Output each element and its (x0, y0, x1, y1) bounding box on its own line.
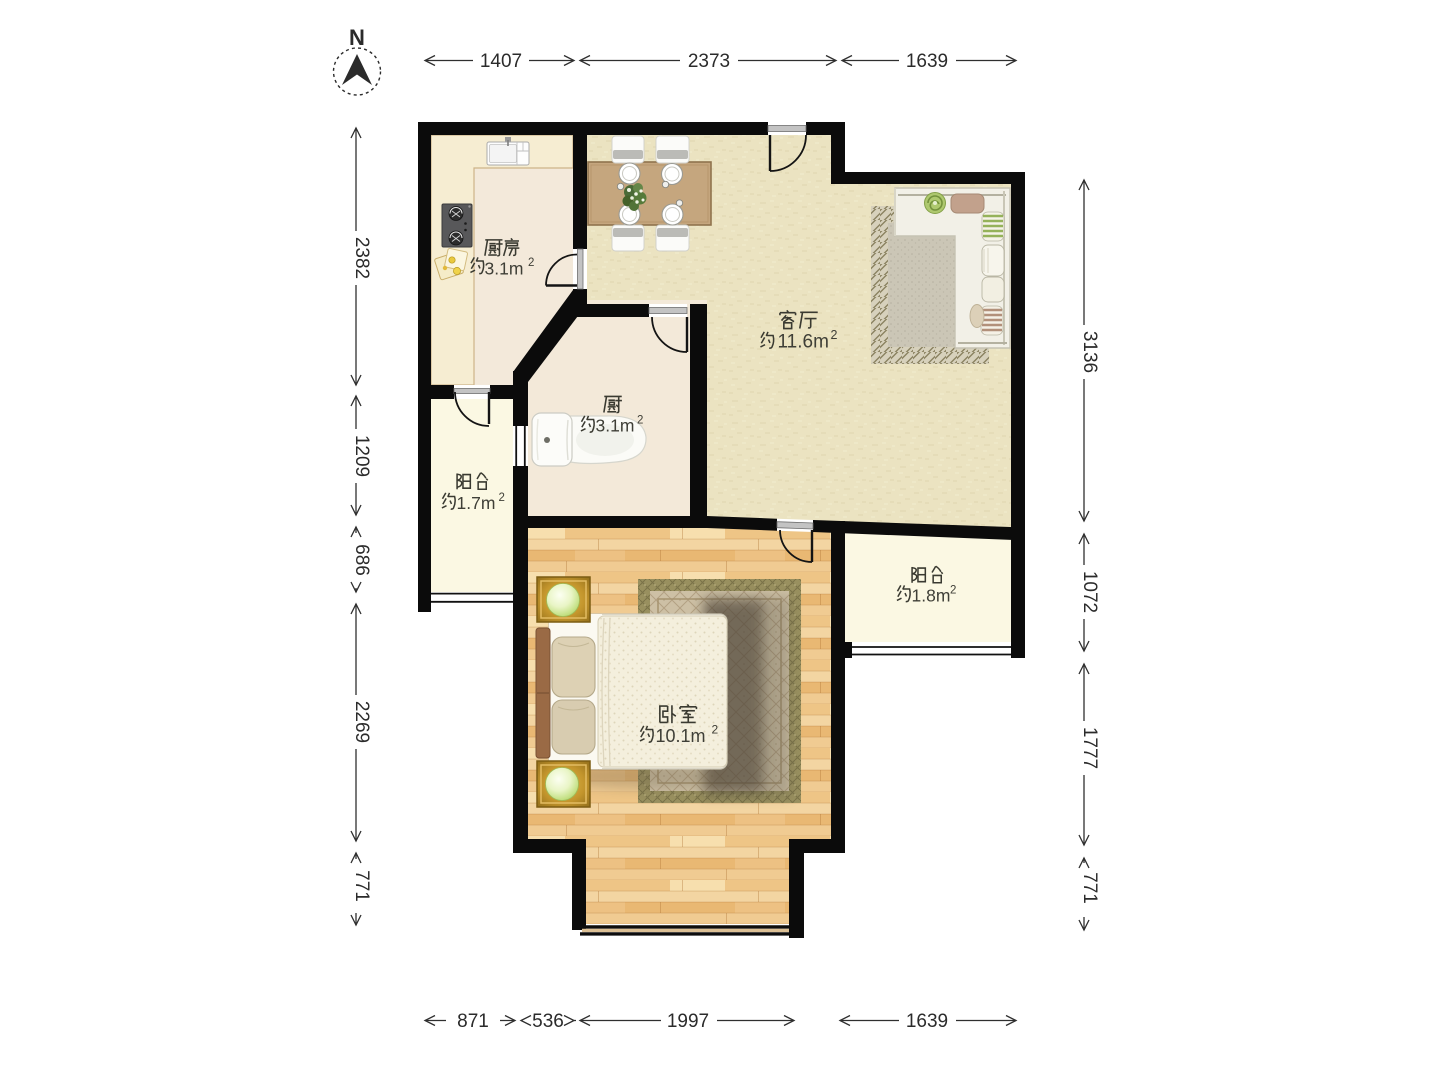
svg-text:2: 2 (950, 585, 956, 597)
svg-text:3.1m: 3.1m (485, 259, 524, 279)
svg-text:2: 2 (831, 328, 838, 342)
svg-text:1639: 1639 (906, 51, 948, 72)
svg-text:536: 536 (532, 1011, 564, 1032)
svg-text:3136: 3136 (1079, 331, 1100, 373)
svg-text:2382: 2382 (351, 237, 372, 279)
svg-text:N: N (349, 25, 365, 50)
svg-text:771: 771 (1079, 872, 1100, 904)
svg-text:1639: 1639 (906, 1011, 948, 1032)
svg-text:10.1m: 10.1m (656, 726, 706, 746)
svg-text:1407: 1407 (480, 51, 522, 72)
svg-text:2: 2 (499, 492, 505, 504)
svg-text:1997: 1997 (667, 1011, 709, 1032)
svg-text:1.7m: 1.7m (457, 493, 496, 513)
svg-text:1209: 1209 (351, 435, 372, 477)
svg-text:1072: 1072 (1079, 571, 1100, 613)
svg-text:2269: 2269 (351, 701, 372, 743)
svg-text:2: 2 (712, 723, 719, 737)
svg-text:2: 2 (528, 257, 534, 269)
svg-text:11.6m: 11.6m (778, 332, 829, 353)
svg-text:3.1m: 3.1m (596, 416, 635, 436)
svg-text:871: 871 (457, 1011, 489, 1032)
svg-text:686: 686 (351, 544, 372, 576)
svg-text:1.8m: 1.8m (912, 586, 951, 606)
svg-text:2: 2 (637, 415, 643, 427)
svg-text:2373: 2373 (688, 51, 730, 72)
svg-text:1777: 1777 (1079, 727, 1100, 769)
svg-text:771: 771 (351, 870, 372, 902)
